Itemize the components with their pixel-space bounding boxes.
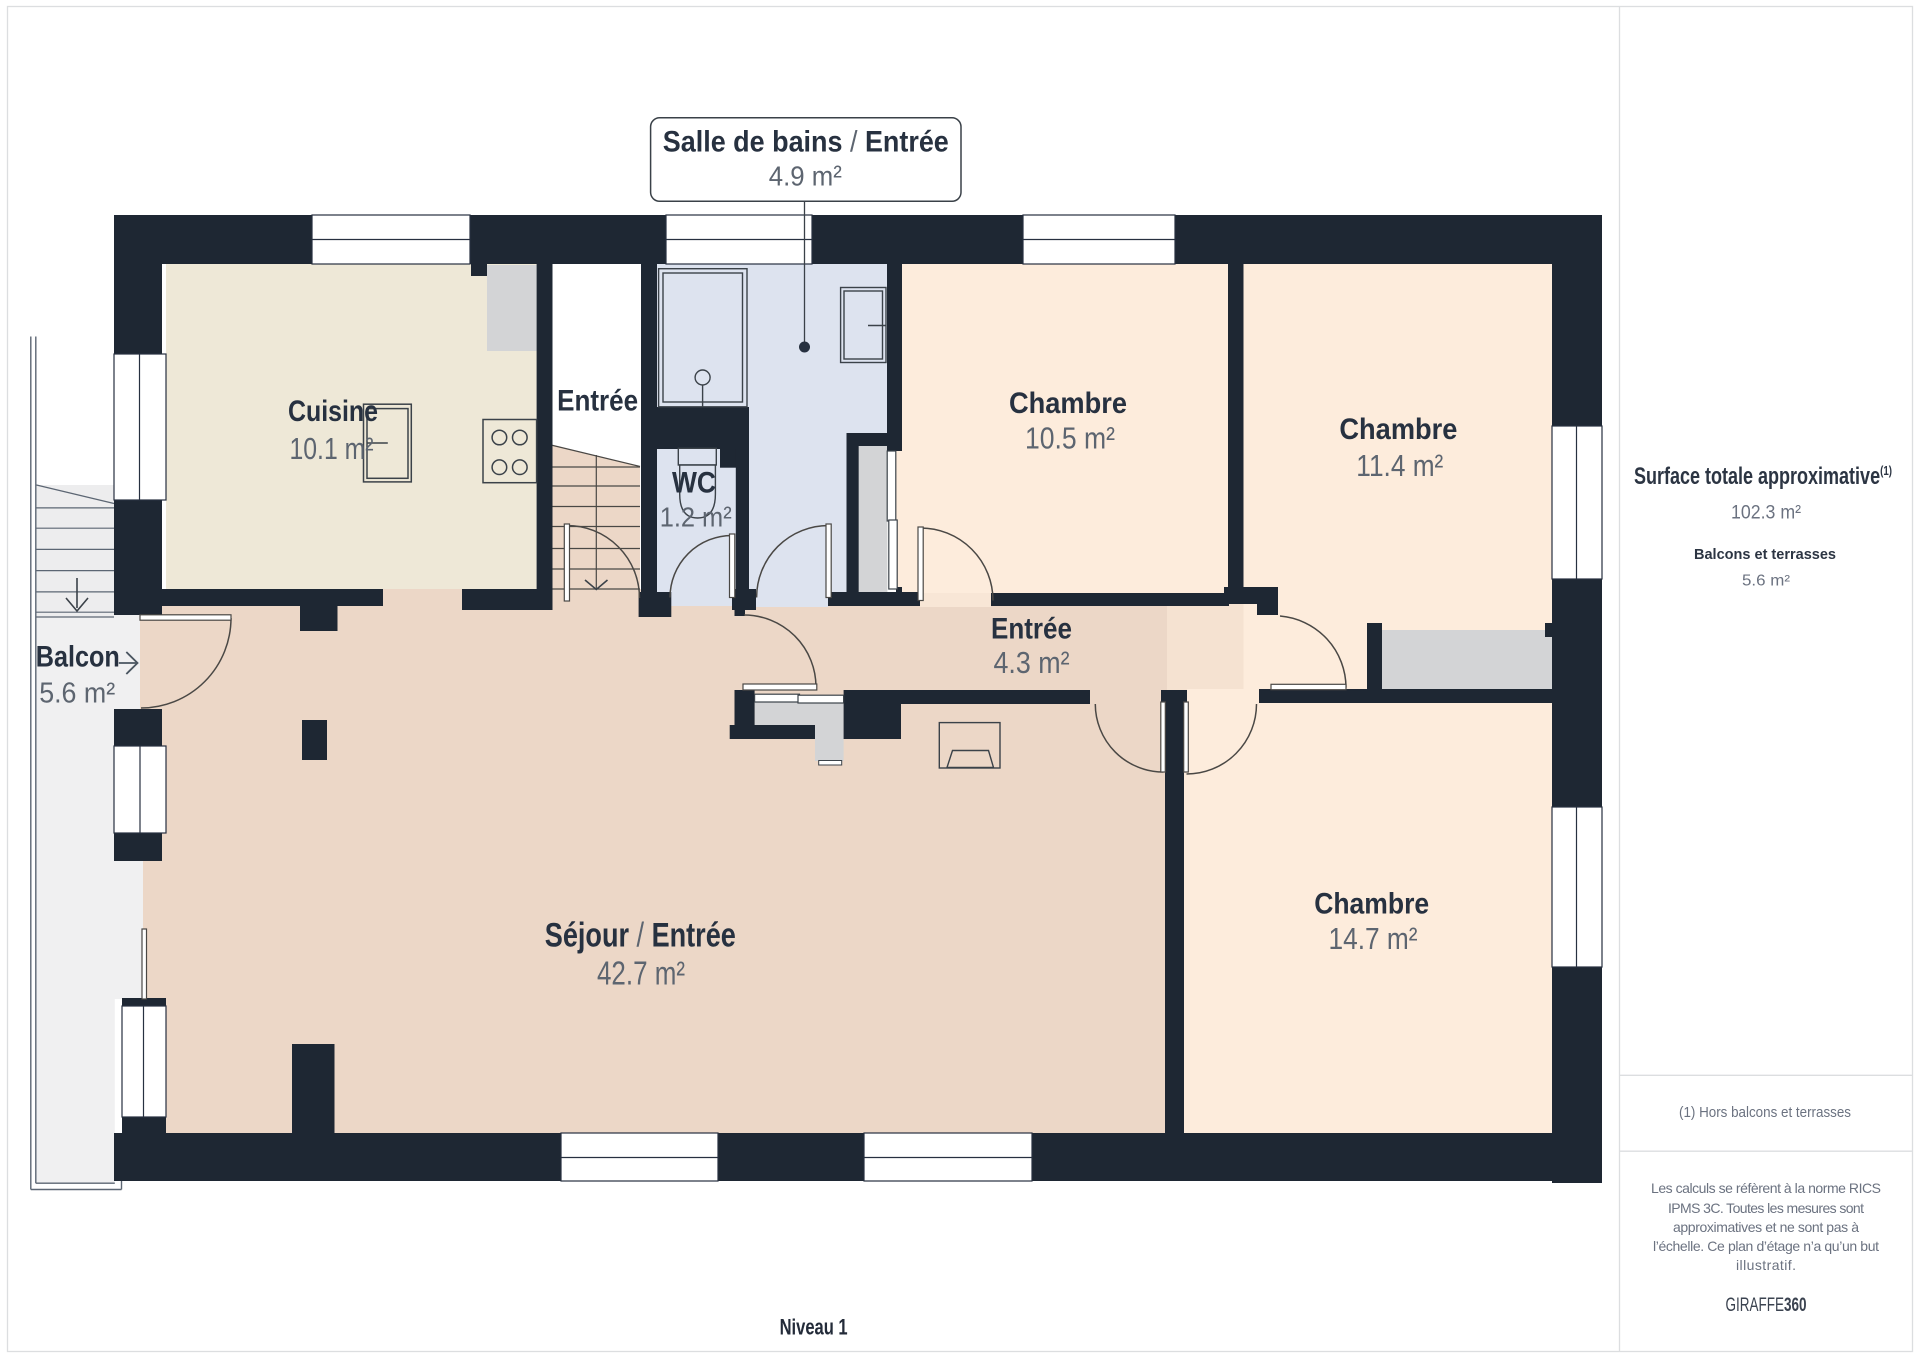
svg-text:11.4 m²: 11.4 m²	[1356, 448, 1443, 483]
svg-text:Salle de bains / Entrée: Salle de bains / Entrée	[663, 126, 949, 159]
svg-text:10.1 m²: 10.1 m²	[290, 431, 374, 466]
svg-text:Chambre: Chambre	[1009, 387, 1127, 420]
svg-text:approximatives et ne sont pas: approximatives et ne sont pas à	[1673, 1219, 1859, 1235]
svg-text:4.3 m²: 4.3 m²	[994, 645, 1070, 680]
svg-text:102.3 m²: 102.3 m²	[1731, 503, 1801, 524]
svg-text:5.6 m²: 5.6 m²	[39, 678, 115, 710]
svg-text:Chambre: Chambre	[1314, 888, 1429, 921]
svg-text:42.7 m²: 42.7 m²	[597, 955, 685, 992]
svg-text:Balcons et terrasses: Balcons et terrasses	[1694, 546, 1836, 563]
svg-text:Niveau 1: Niveau 1	[780, 1315, 848, 1340]
svg-text:Séjour / Entrée: Séjour / Entrée	[545, 917, 736, 955]
svg-text:10.5 m²: 10.5 m²	[1025, 421, 1115, 456]
svg-text:Balcon: Balcon	[36, 641, 120, 674]
svg-text:Cuisine: Cuisine	[288, 395, 378, 428]
svg-text:Surface totale approximative(1: Surface totale approximative(1)	[1634, 463, 1892, 490]
svg-text:WC: WC	[672, 467, 716, 500]
svg-text:5.6 m²: 5.6 m²	[1742, 573, 1790, 590]
svg-text:Entrée: Entrée	[557, 385, 638, 418]
svg-text:GIRAFFE360: GIRAFFE360	[1726, 1295, 1807, 1316]
svg-text:Les calculs se réfèrent à la n: Les calculs se réfèrent à la norme RICS	[1651, 1180, 1881, 1196]
svg-text:4.9 m²: 4.9 m²	[769, 161, 842, 192]
svg-text:Chambre: Chambre	[1339, 413, 1457, 446]
svg-text:Entrée: Entrée	[991, 613, 1072, 646]
svg-text:(1) Hors balcons et terrasses: (1) Hors balcons et terrasses	[1679, 1104, 1851, 1121]
svg-text:illustratif.: illustratif.	[1736, 1257, 1796, 1273]
svg-text:1.2 m²: 1.2 m²	[660, 502, 732, 533]
svg-text:14.7 m²: 14.7 m²	[1329, 921, 1418, 956]
svg-text:IPMS 3C. Toutes les mesures so: IPMS 3C. Toutes les mesures sont	[1668, 1200, 1864, 1216]
svg-text:l’échelle. Ce plan d’étage n’a: l’échelle. Ce plan d’étage n’a qu’un but	[1653, 1238, 1879, 1254]
